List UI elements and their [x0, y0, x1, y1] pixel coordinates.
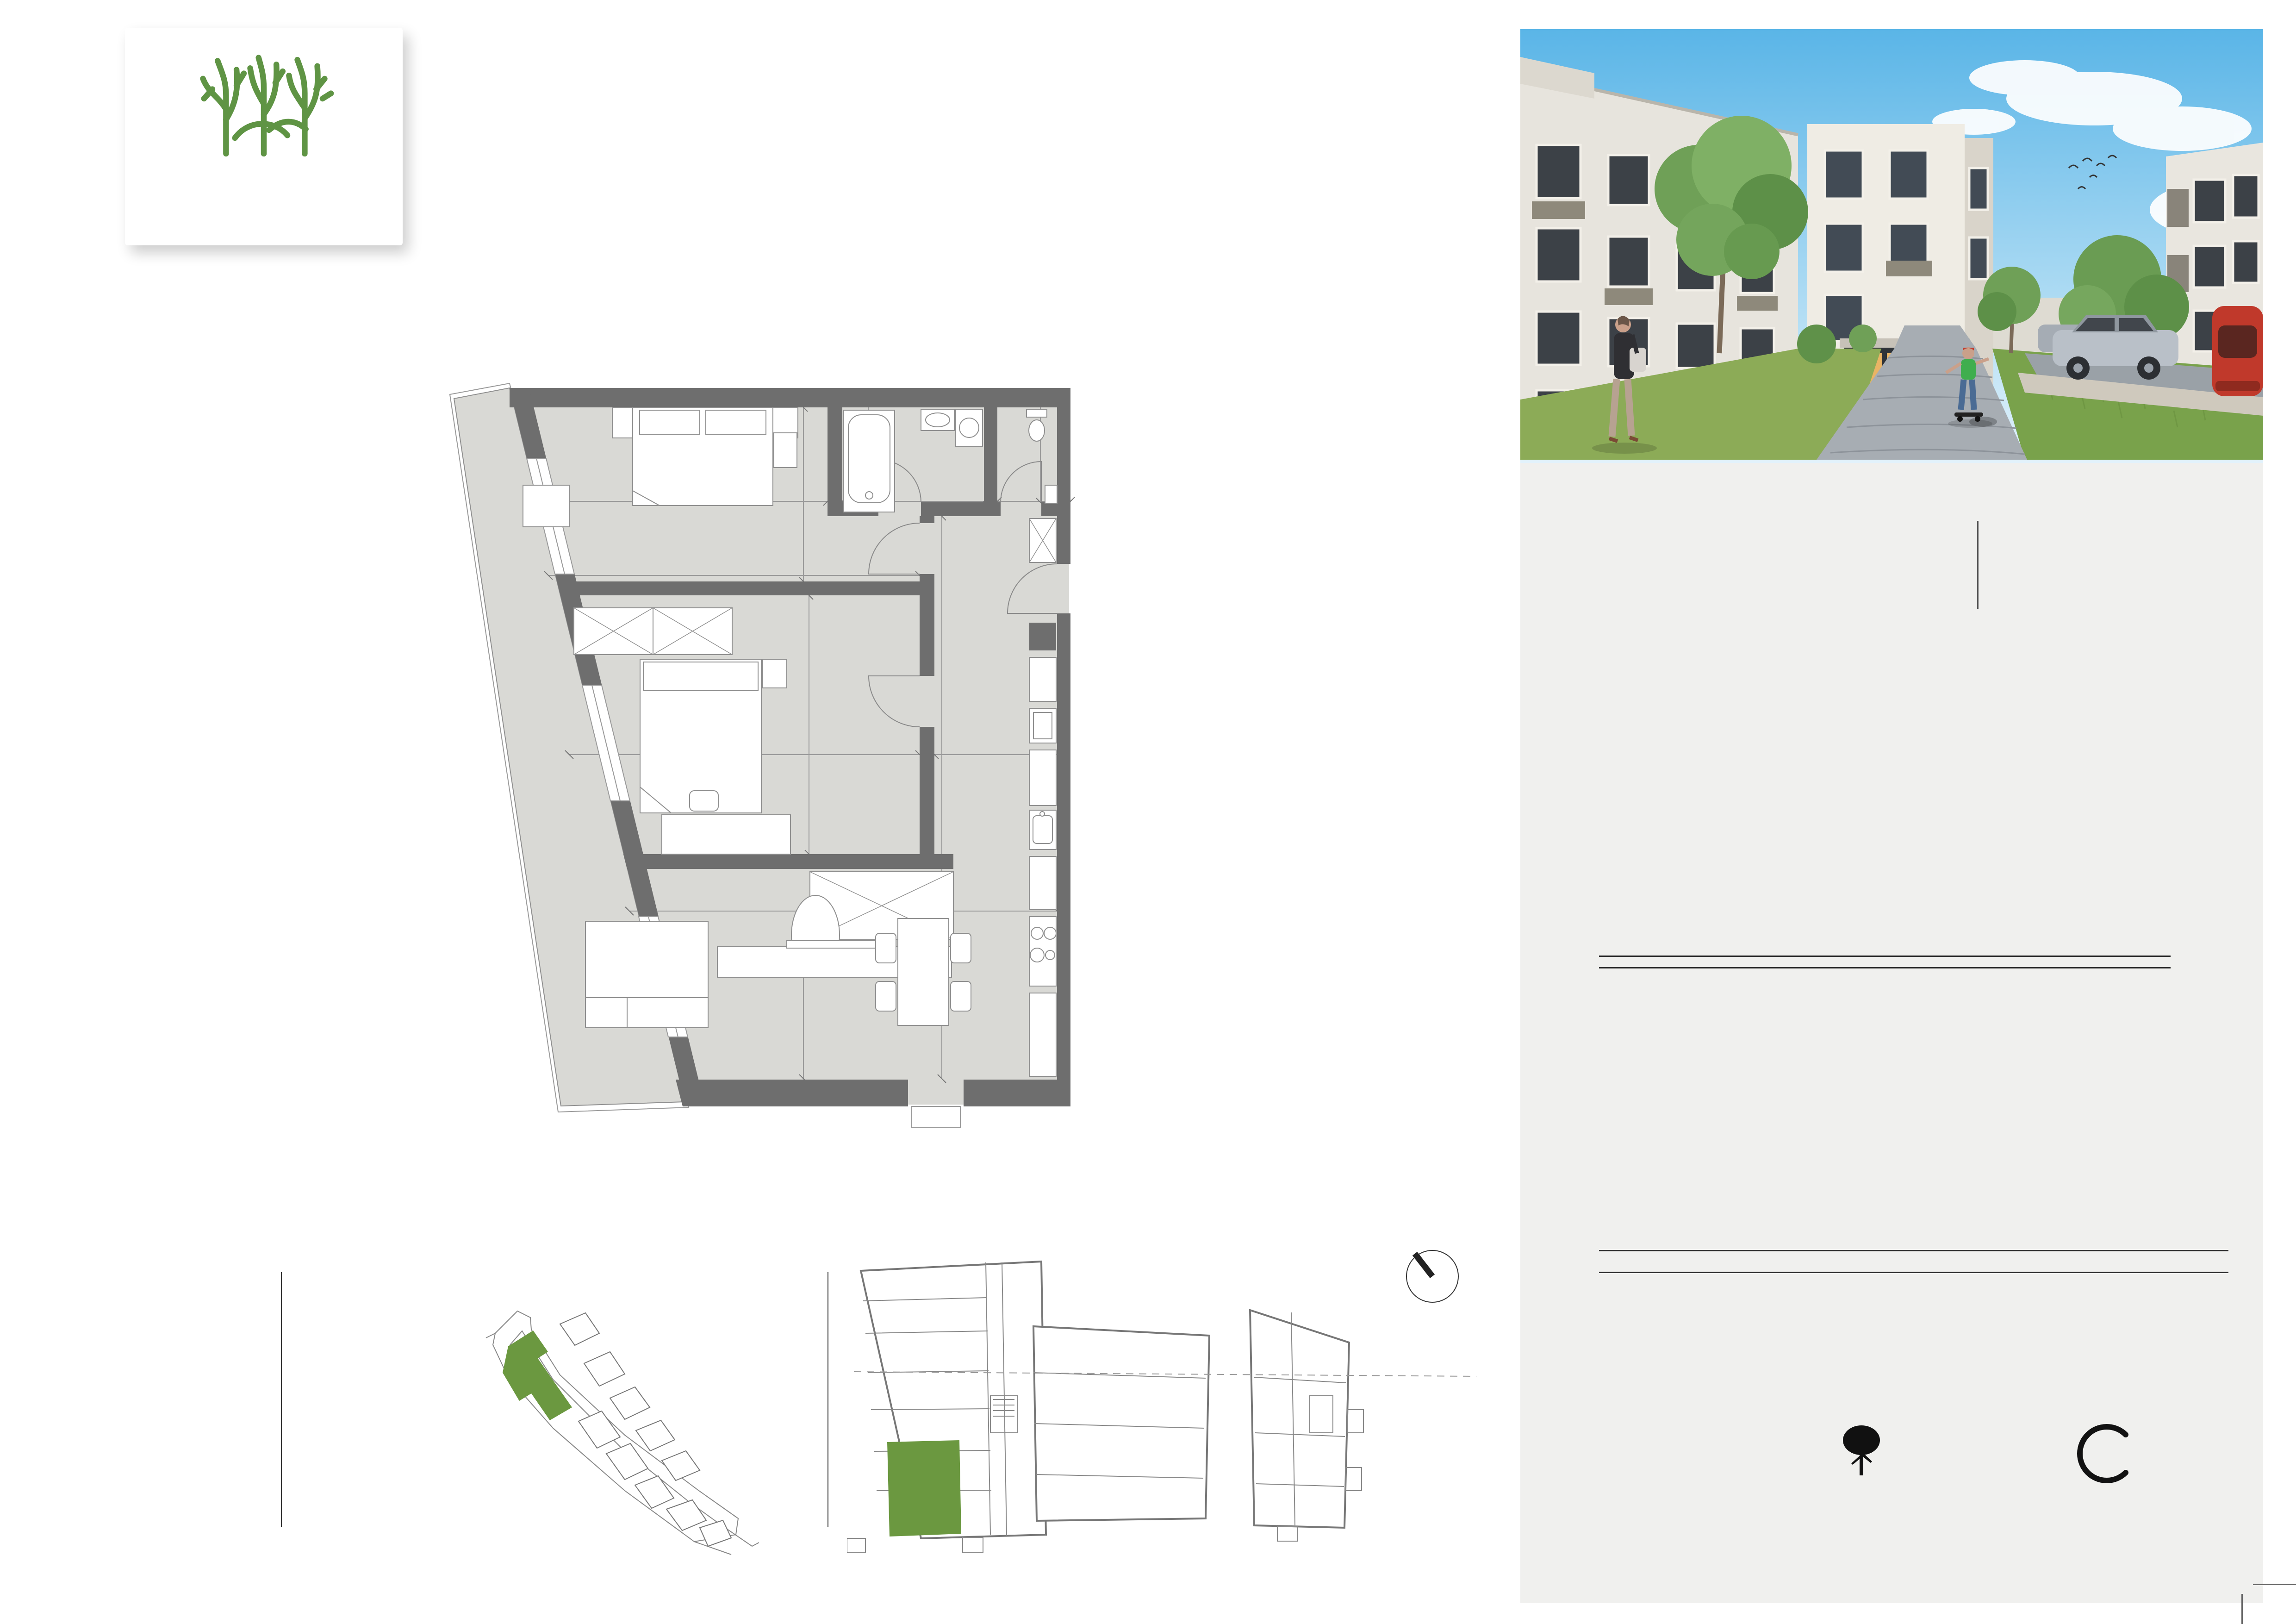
terrace-step: [912, 1106, 960, 1127]
disclaimer-notes: [1599, 1250, 2228, 1277]
red-car: [2212, 306, 2263, 396]
crop-mark-vertical: [2241, 1594, 2243, 1624]
mathis-logo: [1840, 1423, 2034, 1529]
site-map: [301, 1268, 764, 1555]
tree-logo-icon: [185, 41, 342, 156]
info-panel: [1520, 29, 2263, 1603]
legend-rows: [1599, 681, 2171, 947]
notes-divider: [1599, 1272, 2228, 1273]
legend-divider: [1599, 956, 2171, 957]
room-legend: [1599, 655, 2171, 968]
legend-divider-bottom: [1599, 967, 2171, 968]
compass-icon: [1398, 1242, 1467, 1311]
legend-row: [1599, 681, 2171, 714]
legend-row: [1599, 714, 2171, 747]
legend-row: [1599, 914, 2171, 947]
building-photo: [1520, 29, 2263, 463]
legend-row: [1599, 881, 2171, 914]
mathis-tree-icon: [1840, 1423, 1884, 1483]
legend-row: [1599, 747, 2171, 781]
floor-plan: [430, 380, 1106, 1139]
legend-row: [1599, 847, 2171, 881]
divider-line: [828, 1272, 828, 1527]
byty-duo-logo-card: [125, 28, 403, 245]
highlighted-unit: [887, 1440, 961, 1537]
legend-row: [1599, 781, 2171, 814]
pj-circle-icon: [2071, 1418, 2145, 1492]
divider-line: [281, 1272, 282, 1527]
unit-divider: [1977, 521, 1979, 609]
highlighted-building: [503, 1330, 572, 1420]
crop-mark-horizontal: [2253, 1584, 2296, 1585]
pj-logo: [2071, 1418, 2265, 1524]
brochure-page: [0, 0, 2296, 1624]
legend-row: [1599, 814, 2171, 847]
